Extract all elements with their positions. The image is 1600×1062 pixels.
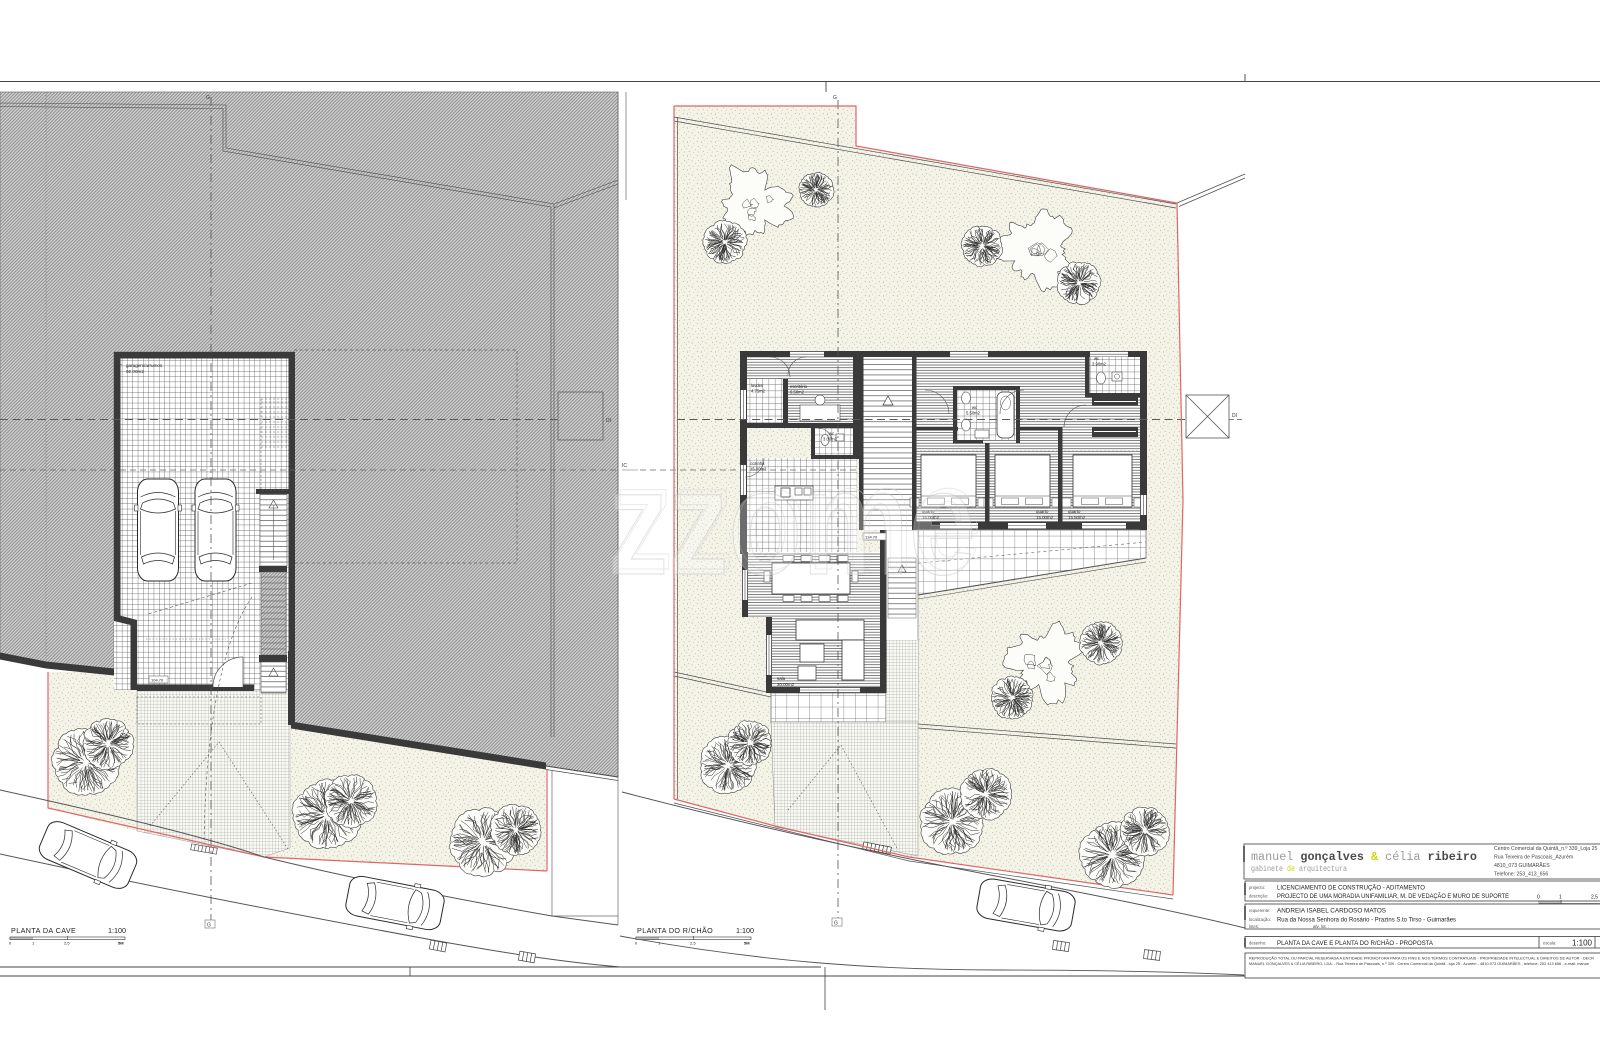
svg-text:PLANTA DA CAVE: PLANTA DA CAVE [11,926,76,935]
svg-text:6.50m2: 6.50m2 [790,390,805,395]
svg-text:requerente:: requerente: [1249,908,1270,913]
svg-text:5.50m2: 5.50m2 [966,411,981,416]
svg-text:DI: DI [1232,413,1237,419]
svg-text:Rua Teixeira de Pascoais_Azuré: Rua Teixeira de Pascoais_Azurém [1494,855,1573,861]
svg-text:LICENCIAMENTO DE CONSTRUÇÃO -: LICENCIAMENTO DE CONSTRUÇÃO - ADITAMENTO [1277,883,1425,892]
svg-text:G: G [207,923,211,929]
svg-text:alv. lot. :: alv. lot. : [1313,924,1329,929]
svg-text:1:100: 1:100 [108,926,126,935]
svg-text:4810_073 GUIMARÃES: 4810_073 GUIMARÃES [1494,862,1550,869]
svg-text:DI: DI [606,418,611,424]
svg-text:104.70: 104.70 [151,678,164,683]
svg-text:manuel gonçalves & célia ribei: manuel gonçalves & célia ribeiro [1251,851,1477,864]
svg-text:G: G [833,95,837,101]
svg-text:1:100: 1:100 [1572,939,1593,948]
svg-text:projecto:: projecto: [1249,885,1265,890]
svg-text:G: G [834,921,838,927]
svg-text:desenho:: desenho: [1249,941,1266,946]
svg-text:Centro Comercial da Quintã_n.º: Centro Comercial da Quintã_n.º 339_Loja … [1494,846,1598,852]
svg-text:wc: wc [1094,356,1099,361]
svg-text:quarto: quarto [1036,509,1049,514]
svg-text:2,5: 2,5 [1591,895,1598,901]
svg-text:Telefone: 253_413_656: Telefone: 253_413_656 [1494,872,1548,878]
svg-text:Rua da Nossa Senhora do Rosári: Rua da Nossa Senhora do Rosário - Prazin… [1277,917,1457,924]
svg-text:0: 0 [1537,895,1540,901]
svg-text:escritório: escritório [790,384,808,389]
svg-text:escala:: escala: [1543,941,1556,946]
svg-text:15.50m2: 15.50m2 [1068,515,1086,520]
svg-text:localização:: localização: [1249,917,1271,922]
svg-text:1:100: 1:100 [736,926,754,935]
svg-text:descrição:: descrição: [1249,894,1268,899]
svg-text:3.90m2: 3.90m2 [1092,362,1107,367]
svg-text:zzome: zzome [613,433,981,601]
svg-text:1: 1 [1559,895,1562,901]
svg-text:30.00m2: 30.00m2 [777,682,795,687]
svg-text:PLANTA DO R/CHÃO: PLANTA DO R/CHÃO [637,926,713,935]
svg-text:MANUEL GONÇALVES & CÉLIA RIBEI: MANUEL GONÇALVES & CÉLIA RIBEIRO, LDA. -… [1249,961,1589,966]
svg-text:4.75m2: 4.75m2 [751,389,766,394]
svg-text:lavdes: lavdes [751,383,763,388]
svg-text:REPRODUÇÃO TOTAL OU PARCIAL RE: REPRODUÇÃO TOTAL OU PARCIAL RESERVADA A … [1249,956,1594,961]
svg-text:G: G [206,95,210,101]
svg-text:02.00m2: 02.00m2 [126,369,144,374]
svg-text:2,5: 2,5 [64,941,70,946]
svg-text:15.00m2: 15.00m2 [1036,515,1054,520]
svg-text:gabinete de arquitectura: gabinete de arquitectura [1251,865,1347,874]
svg-text:wc: wc [972,405,977,410]
svg-text:5M: 5M [118,941,124,946]
svg-text:2,5: 2,5 [690,941,696,946]
svg-text:lotes:: lotes: [1249,924,1259,929]
svg-text:5M: 5M [744,941,750,946]
svg-text:PROJECTO DE UMA MORADIA UNIFAM: PROJECTO DE UMA MORADIA UNIFAMILIAR, M. … [1277,891,1510,900]
svg-text:quarto: quarto [1068,509,1081,514]
svg-text:ANDREIA ISABEL CARDOSO MATOS: ANDREIA ISABEL CARDOSO MATOS [1277,908,1387,915]
svg-text:PLANTA DA CAVE E PLANTA DO R/C: PLANTA DA CAVE E PLANTA DO R/CHÃO - PROP… [1277,938,1434,947]
svg-text:garagem/arrumos: garagem/arrumos [126,363,163,368]
svg-text:sala: sala [777,676,786,681]
